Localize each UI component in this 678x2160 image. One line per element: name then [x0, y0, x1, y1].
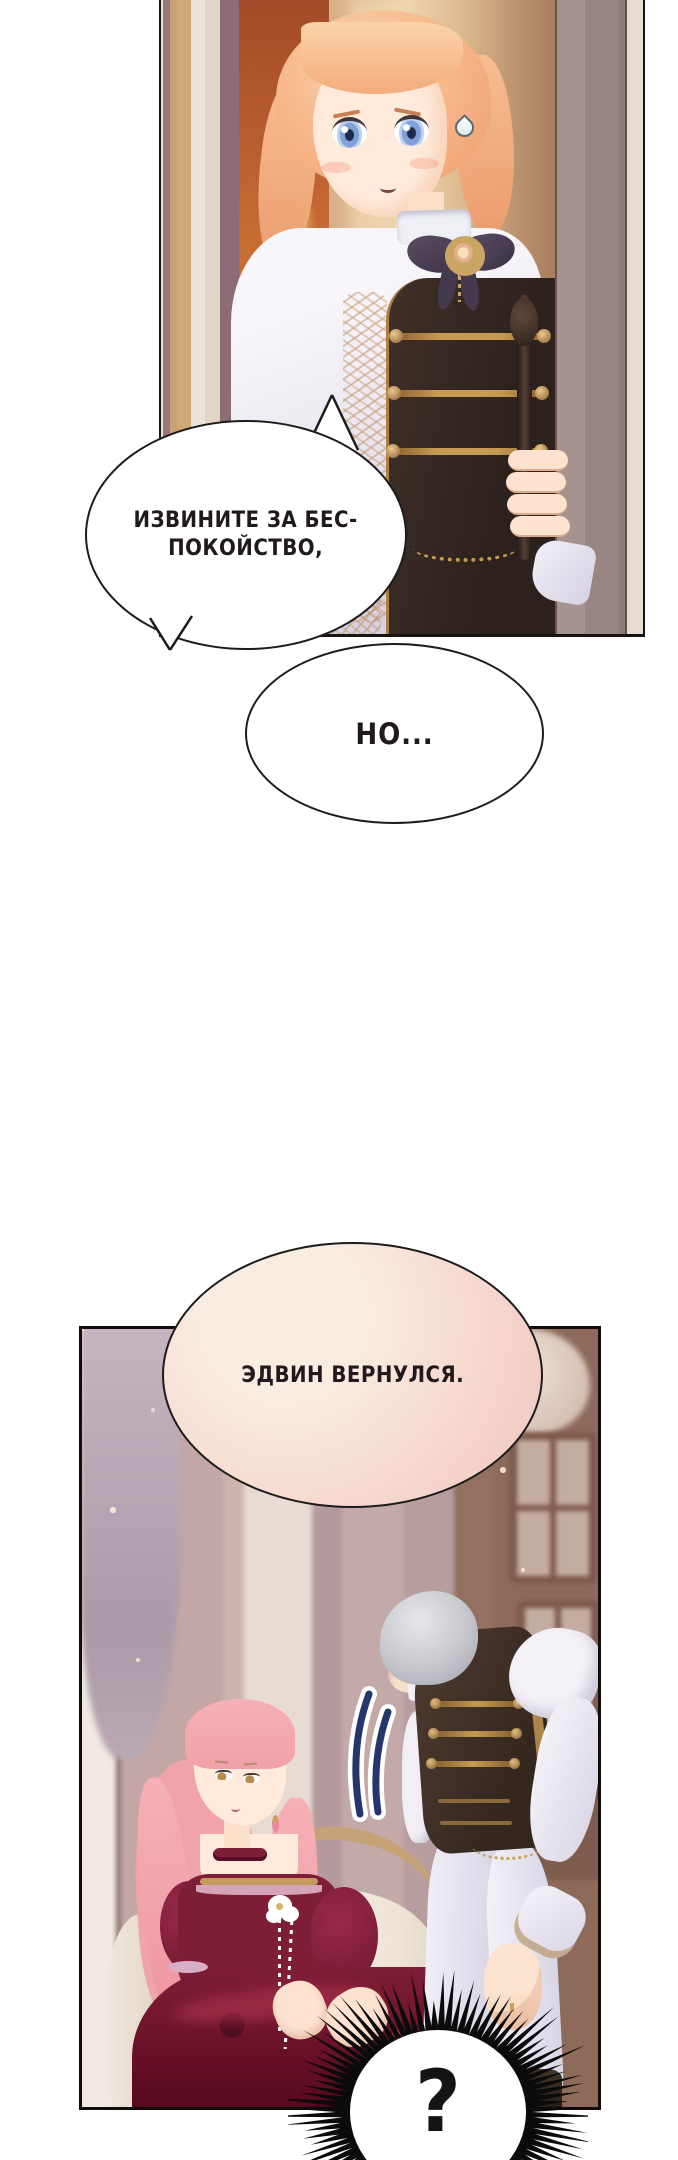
heroine-eye	[215, 1770, 232, 1780]
light-sparkles	[82, 1329, 84, 1331]
door-handle	[510, 298, 538, 346]
cabinet-pane	[510, 1433, 596, 1583]
dialog-text: НО...	[355, 717, 433, 751]
heroine-earring	[272, 1815, 279, 1833]
maid-hand	[508, 450, 568, 471]
speech-bubble-2: НО...	[245, 643, 544, 824]
vest-frog-button	[430, 1761, 516, 1767]
vest-strap	[438, 1799, 510, 1803]
dress-lace	[196, 1885, 322, 1895]
light-sparkles	[161, 0, 163, 2]
bubble-tail-notch	[146, 612, 196, 656]
maid-blush	[321, 162, 351, 173]
maid-eye	[394, 115, 429, 146]
maid-eye	[332, 117, 367, 148]
question-mark-text: ?	[374, 2052, 503, 2152]
maid-hand	[506, 472, 566, 493]
flower-corsage	[268, 1895, 292, 1917]
dress-gold-trim	[200, 1878, 318, 1885]
vest-strap	[440, 1821, 512, 1825]
bow-dangle	[458, 276, 461, 302]
sigh-dash-icon	[345, 1684, 409, 1826]
vest-chain	[413, 534, 517, 562]
heroine-choker	[213, 1848, 267, 1861]
dialog-text: ИЗВИНИТЕ ЗА БЕС- ПОКОЙСТВО,	[134, 507, 358, 563]
maid-hand	[507, 494, 567, 515]
bow-jewel	[445, 236, 485, 276]
heroine-hair	[185, 1699, 295, 1769]
maid-blush	[409, 158, 439, 169]
comic-page: ИЗВИНИТЕ ЗА БЕС- ПОКОЙСТВО, НО...	[0, 0, 678, 2160]
heroine-eye	[243, 1773, 260, 1783]
speech-bubble-3: ЭДВИН ВЕРНУЛСЯ.	[162, 1242, 543, 1508]
vest-frog-button	[434, 1701, 520, 1707]
heroine-mouth	[231, 1805, 240, 1812]
maid-mouth	[380, 183, 396, 193]
vest-frog-button	[432, 1731, 518, 1737]
door	[555, 0, 645, 637]
maid-hand	[510, 516, 570, 537]
speech-bubble-1: ИЗВИНИТЕ ЗА БЕС- ПОКОЙСТВО,	[85, 420, 407, 650]
dialog-text: ЭДВИН ВЕРНУЛСЯ.	[241, 1363, 464, 1388]
